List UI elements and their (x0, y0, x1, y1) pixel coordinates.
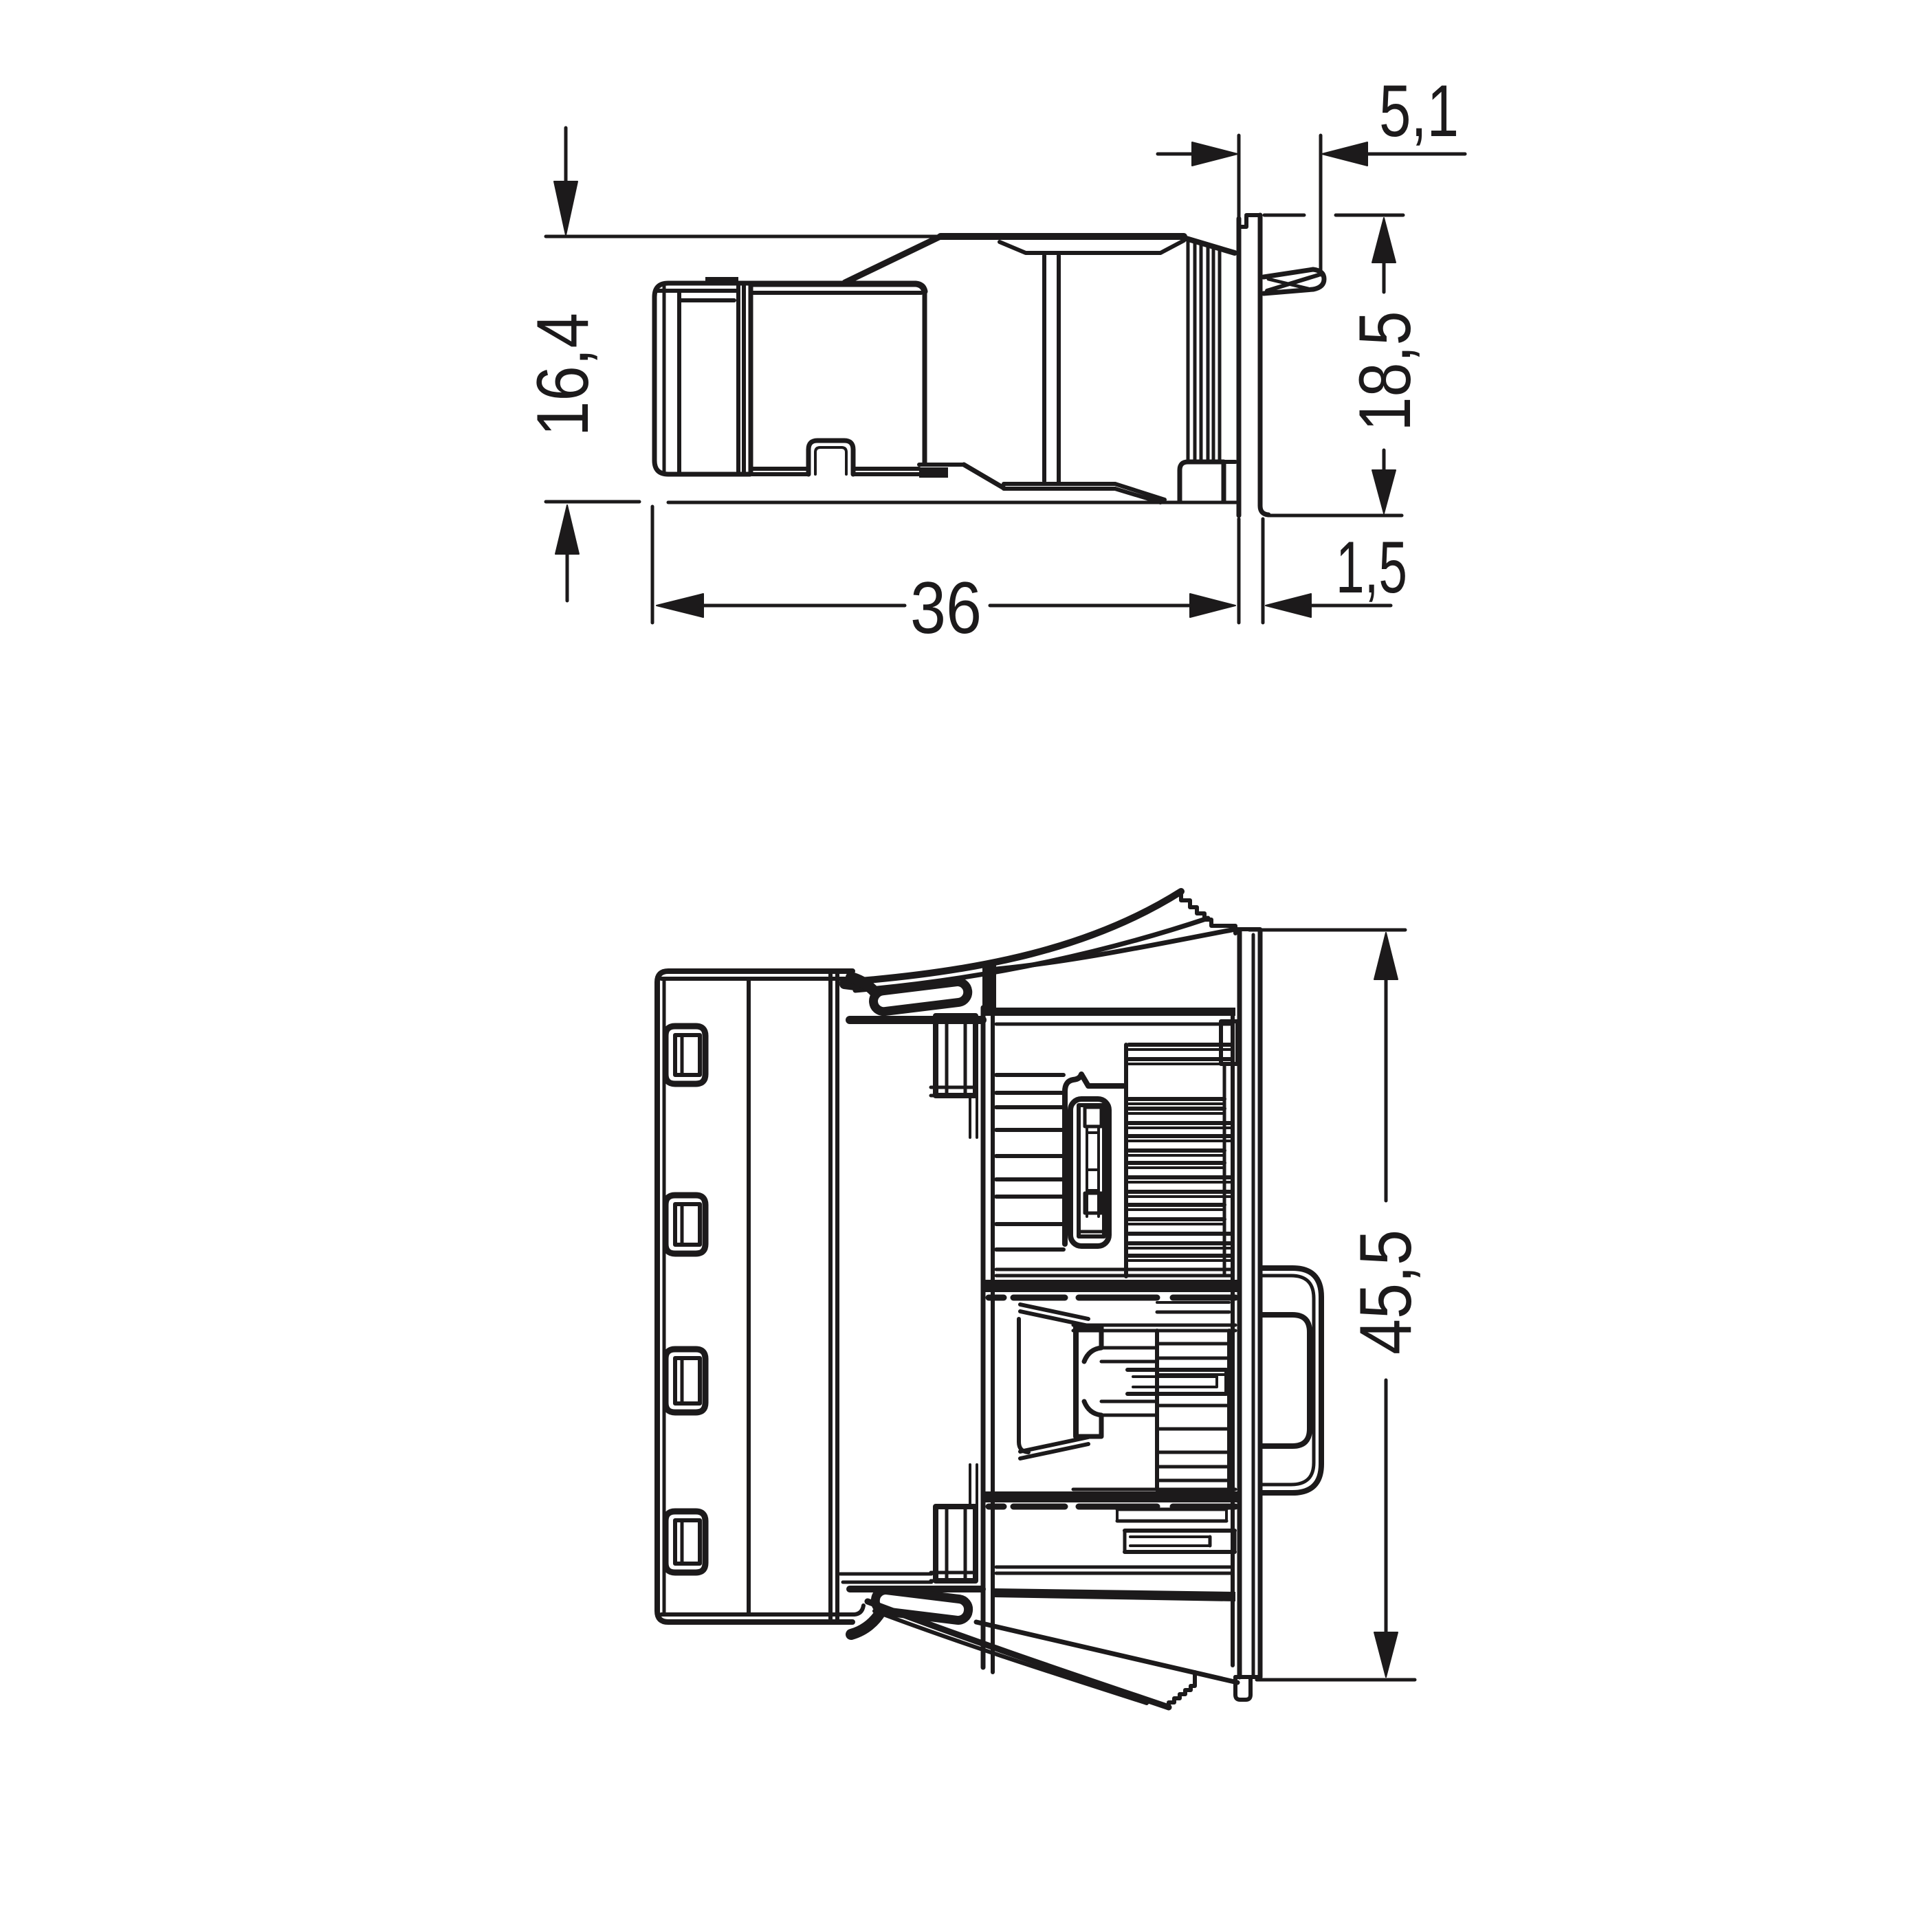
svg-text:5,1: 5,1 (1379, 69, 1459, 152)
svg-text:45,5: 45,5 (1344, 1230, 1427, 1355)
svg-text:36: 36 (910, 566, 982, 649)
svg-text:18,5: 18,5 (1343, 311, 1426, 432)
svg-text:16,4: 16,4 (521, 313, 604, 436)
svg-text:1,5: 1,5 (1336, 526, 1407, 608)
